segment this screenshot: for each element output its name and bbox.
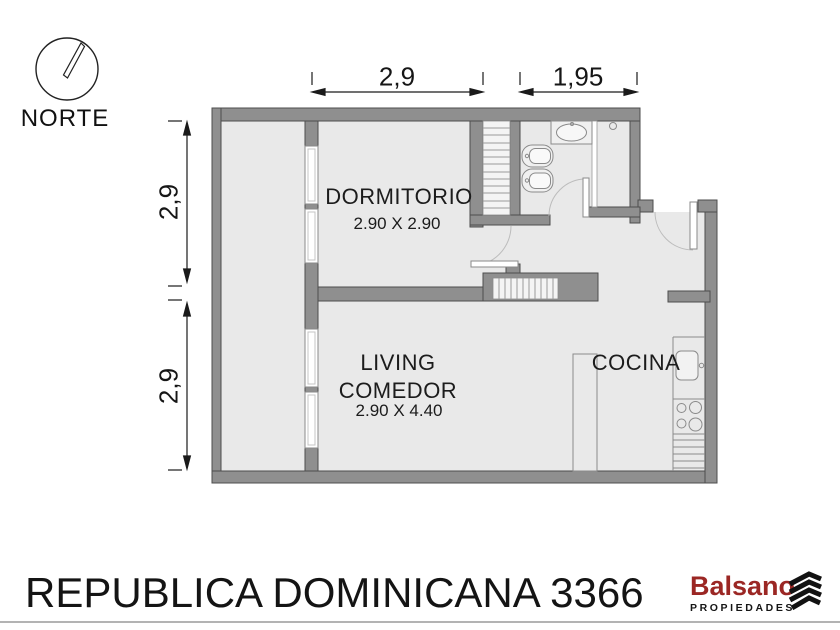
room-label-living: LIVING	[360, 350, 435, 376]
toilet	[522, 169, 553, 192]
entry-door-leaf	[690, 202, 697, 249]
closet-tall	[483, 121, 510, 215]
room-size-living: 2.90 X 4.40	[356, 401, 443, 421]
closet-low	[493, 278, 558, 299]
compass-north-icon	[30, 33, 106, 107]
bedroom-door-leaf	[471, 261, 518, 267]
agency-logo: Balsano PROPIEDADES	[690, 573, 795, 614]
room-size-dormitorio: 2.90 X 2.90	[354, 214, 441, 234]
bathroom-sink	[551, 121, 592, 144]
stacked-chevrons-icon	[786, 570, 824, 612]
floorplan-drawing	[0, 0, 840, 630]
floorplan-canvas: NORTE 2,9 1,95 2,9 2,9 DORMITORIO 2.90 X…	[0, 0, 840, 630]
room-label-dormitorio: DORMITORIO	[325, 184, 473, 210]
room-label-cocina: COCINA	[592, 350, 681, 376]
dim-top-width-1: 2,9	[379, 62, 415, 93]
logo-tagline: PROPIEDADES	[690, 602, 795, 614]
logo-brand-name: Balsano	[690, 573, 795, 600]
page-bottom-border	[0, 621, 840, 623]
dim-left-height-2: 2,9	[154, 368, 185, 404]
address-title: REPUBLICA DOMINICANA 3366	[25, 569, 644, 617]
bidet	[522, 145, 553, 167]
shower-partition	[592, 121, 597, 207]
compass-label: NORTE	[21, 105, 110, 133]
bathroom-door-leaf	[583, 178, 589, 217]
dim-left-height-1: 2,9	[154, 184, 185, 220]
dim-top-width-2: 1,95	[553, 62, 604, 93]
